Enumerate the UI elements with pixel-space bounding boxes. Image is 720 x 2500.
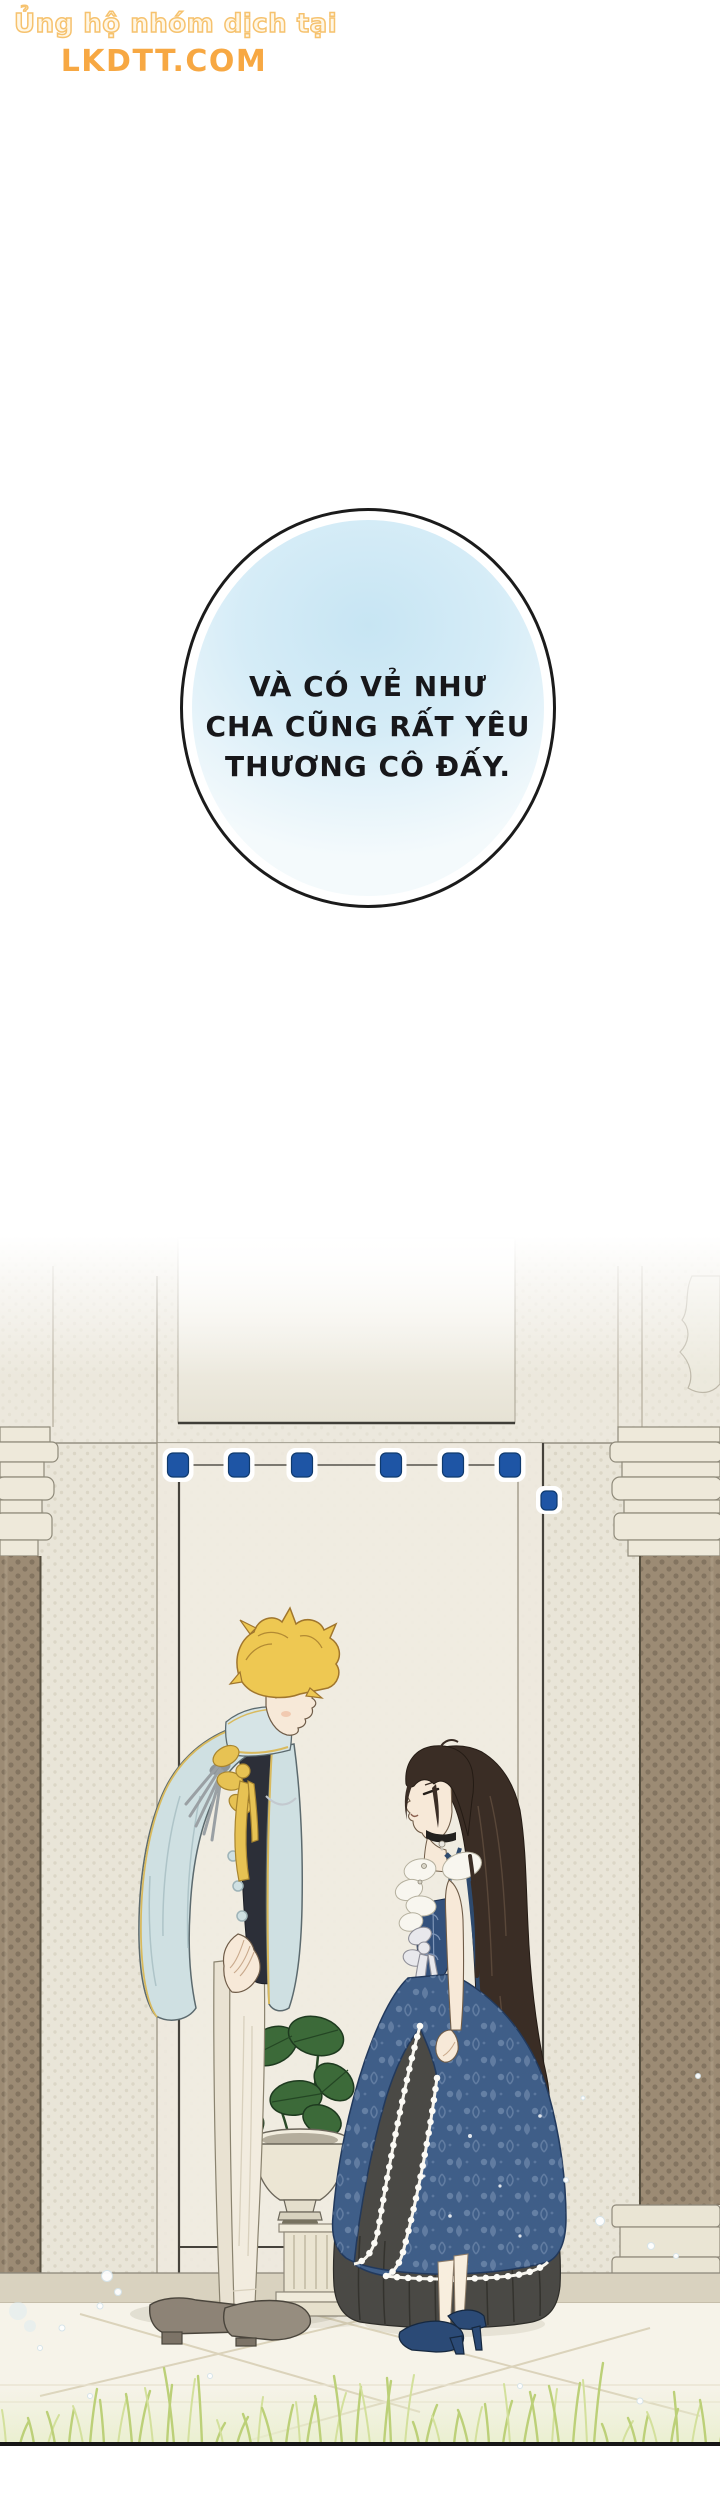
scene-drawing — [0, 1236, 720, 2446]
bubble-line-3: THƯƠNG CÔ ĐẤY. — [225, 747, 511, 787]
bubble-line-2: CHA CŨNG RẤT YÊU — [205, 707, 530, 747]
manhwa-page: Ủng hộ nhóm dịch tại LKDTT.COM VÀ CÓ VẺ … — [0, 0, 720, 2500]
translator-watermark: Ủng hộ nhóm dịch tại LKDTT.COM — [14, 6, 314, 77]
panel-bottom-border — [0, 2442, 720, 2446]
watermark-site: LKDTT.COM — [14, 47, 314, 77]
speech-bubble-text: VÀ CÓ VẺ NHƯ CHA CŨNG RẤT YÊU THƯƠNG CÔ … — [183, 511, 553, 905]
watermark-text: Ủng hộ nhóm dịch tại — [14, 6, 314, 42]
scene-top-fade — [0, 1236, 720, 1376]
panel-illustration — [0, 1236, 720, 2446]
speech-bubble: VÀ CÓ VẺ NHƯ CHA CŨNG RẤT YÊU THƯƠNG CÔ … — [180, 508, 556, 908]
bubble-line-1: VÀ CÓ VẺ NHƯ — [249, 667, 487, 707]
